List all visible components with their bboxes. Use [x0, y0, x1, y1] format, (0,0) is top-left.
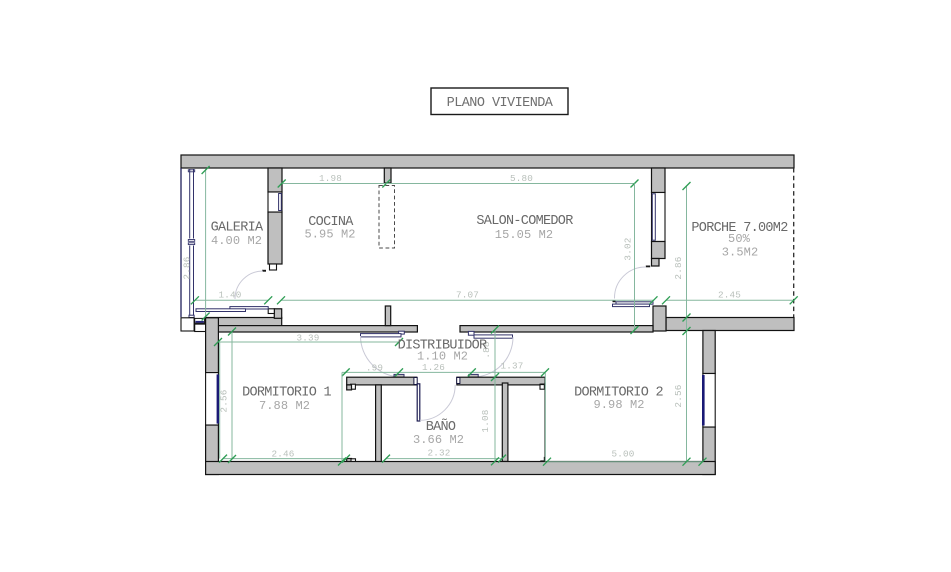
svg-text:1.98: 1.98: [319, 173, 342, 184]
svg-text:5.80: 5.80: [510, 173, 533, 184]
svg-text:3.02: 3.02: [623, 237, 634, 260]
svg-text:7.88 M2: 7.88 M2: [259, 399, 310, 413]
svg-text:3.39: 3.39: [296, 333, 319, 344]
svg-text:2.32: 2.32: [427, 448, 450, 459]
svg-text:2.46: 2.46: [271, 449, 294, 460]
svg-text:15.05 M2: 15.05 M2: [495, 228, 553, 242]
svg-text:1.08: 1.08: [480, 409, 491, 432]
svg-text:9.98 M2: 9.98 M2: [593, 398, 644, 412]
svg-text:5.00: 5.00: [611, 449, 634, 460]
svg-text:50%: 50%: [728, 232, 751, 246]
svg-text:5.95 M2: 5.95 M2: [304, 228, 355, 242]
svg-text:1.40: 1.40: [218, 290, 241, 301]
svg-text:7.07: 7.07: [456, 290, 479, 301]
svg-text:2.86: 2.86: [673, 256, 684, 279]
svg-text:3.66 M2: 3.66 M2: [413, 433, 464, 447]
svg-text:1.26: 1.26: [422, 362, 445, 373]
svg-text:2.86: 2.86: [182, 256, 193, 279]
svg-text:3.5M2: 3.5M2: [722, 246, 759, 260]
svg-text:PLANO VIVIENDA: PLANO VIVIENDA: [447, 96, 554, 111]
svg-text:2.56: 2.56: [673, 384, 684, 407]
svg-text:SALON-COMEDOR: SALON-COMEDOR: [476, 214, 573, 229]
svg-text:4.00 M2: 4.00 M2: [211, 234, 262, 248]
svg-text:.99: .99: [366, 362, 383, 373]
svg-text:1.37: 1.37: [500, 361, 523, 372]
svg-text:2.45: 2.45: [718, 290, 741, 301]
svg-text:1.10 M2: 1.10 M2: [417, 350, 468, 364]
